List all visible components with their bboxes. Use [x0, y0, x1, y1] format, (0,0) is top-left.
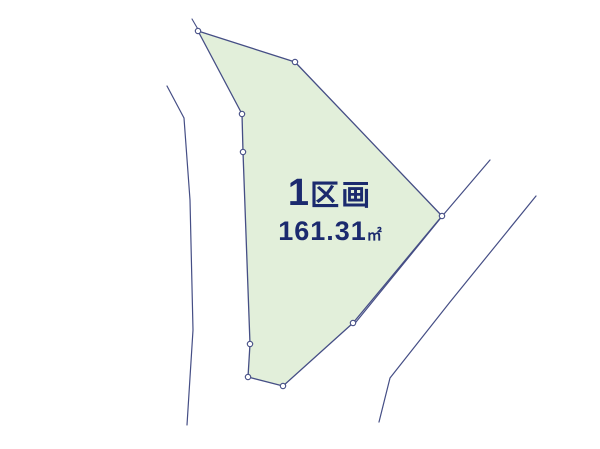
survey-point-marker — [245, 374, 250, 379]
plot-annotation: 1区画 161.31㎡ — [230, 172, 430, 246]
plot-label: 1区画 — [230, 172, 430, 215]
survey-point-marker — [280, 383, 285, 388]
survey-point-marker — [239, 111, 244, 116]
site-plan-canvas: 1区画 161.31㎡ — [0, 0, 600, 449]
plot-label-suffix: 区画 — [310, 180, 372, 212]
plot-area-unit: ㎡ — [367, 227, 382, 244]
plot-area-value: 161.31 — [278, 216, 367, 246]
survey-point-marker — [247, 341, 252, 346]
plot-area: 161.31㎡ — [230, 216, 430, 246]
road-boundary-line — [167, 86, 193, 425]
survey-point-marker — [350, 320, 355, 325]
survey-point-marker — [439, 213, 444, 218]
plot-number: 1 — [288, 172, 310, 214]
survey-point-marker — [292, 59, 297, 64]
survey-point-marker — [240, 149, 245, 154]
survey-point-marker — [195, 28, 200, 33]
